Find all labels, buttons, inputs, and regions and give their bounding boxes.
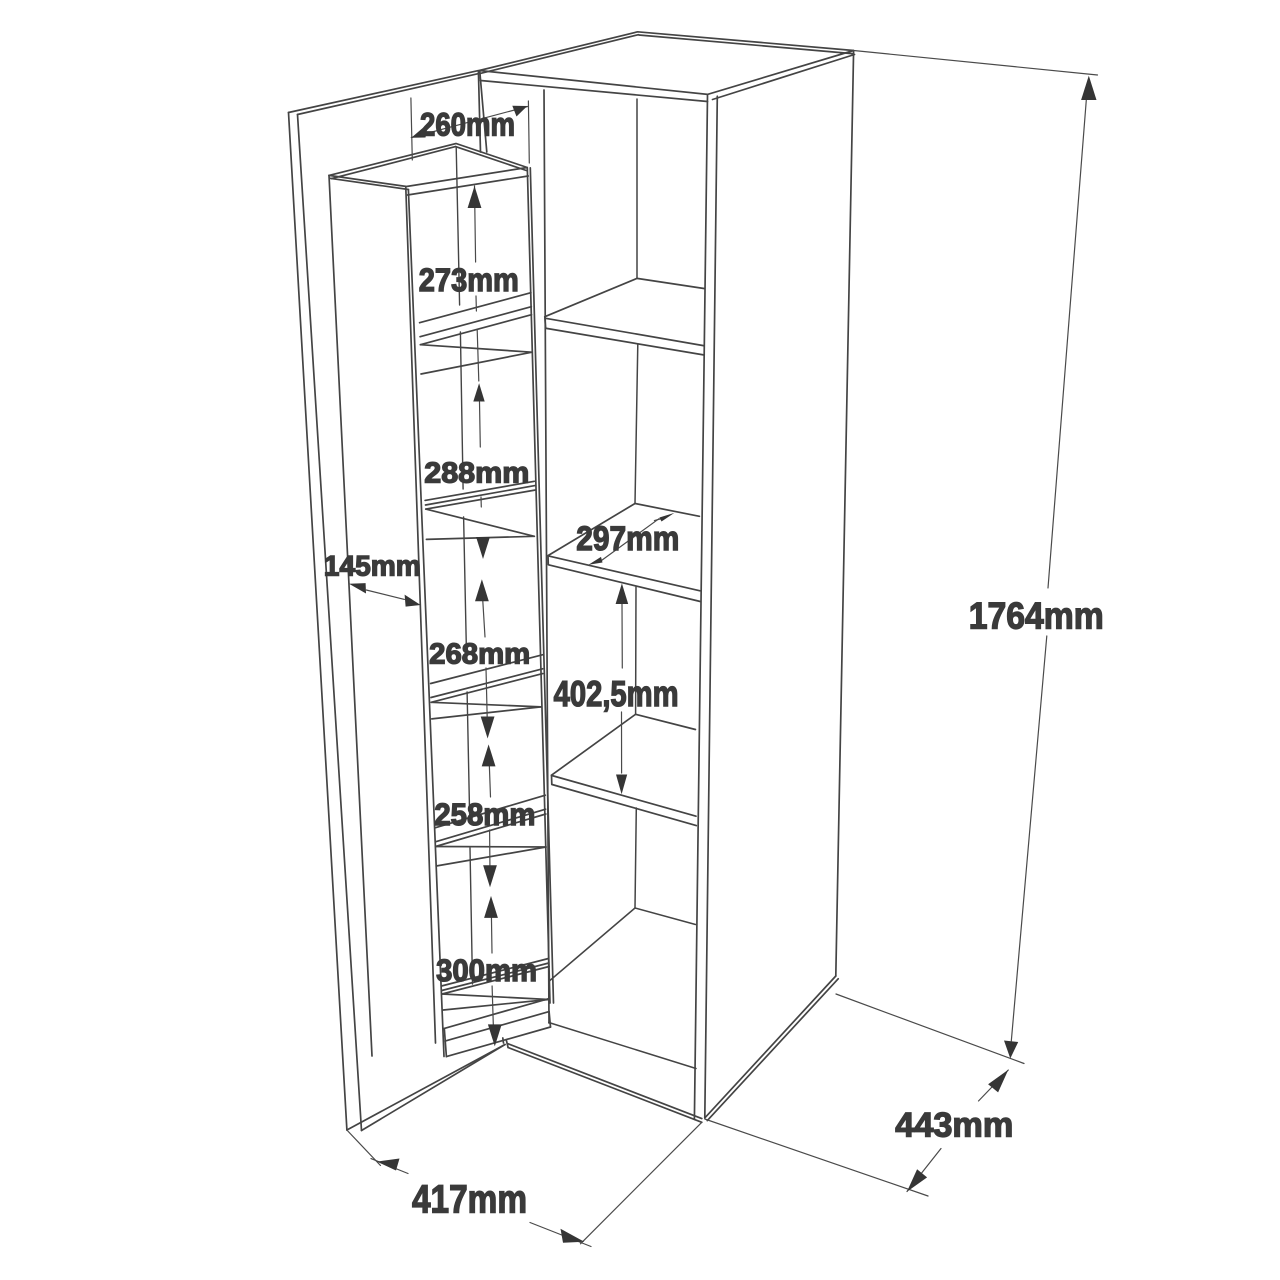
svg-text:402,5mm: 402,5mm bbox=[554, 673, 679, 714]
svg-text:288mm: 288mm bbox=[424, 458, 529, 490]
svg-text:260mm: 260mm bbox=[420, 107, 515, 143]
svg-text:268mm: 268mm bbox=[429, 639, 530, 671]
svg-text:145mm: 145mm bbox=[324, 551, 421, 583]
svg-text:300mm: 300mm bbox=[436, 953, 537, 988]
svg-text:258mm: 258mm bbox=[434, 797, 535, 832]
svg-text:1764mm: 1764mm bbox=[969, 595, 1104, 637]
svg-text:443mm: 443mm bbox=[895, 1107, 1013, 1145]
svg-text:273mm: 273mm bbox=[419, 262, 519, 298]
svg-text:417mm: 417mm bbox=[412, 1178, 527, 1222]
svg-text:297mm: 297mm bbox=[576, 520, 679, 558]
